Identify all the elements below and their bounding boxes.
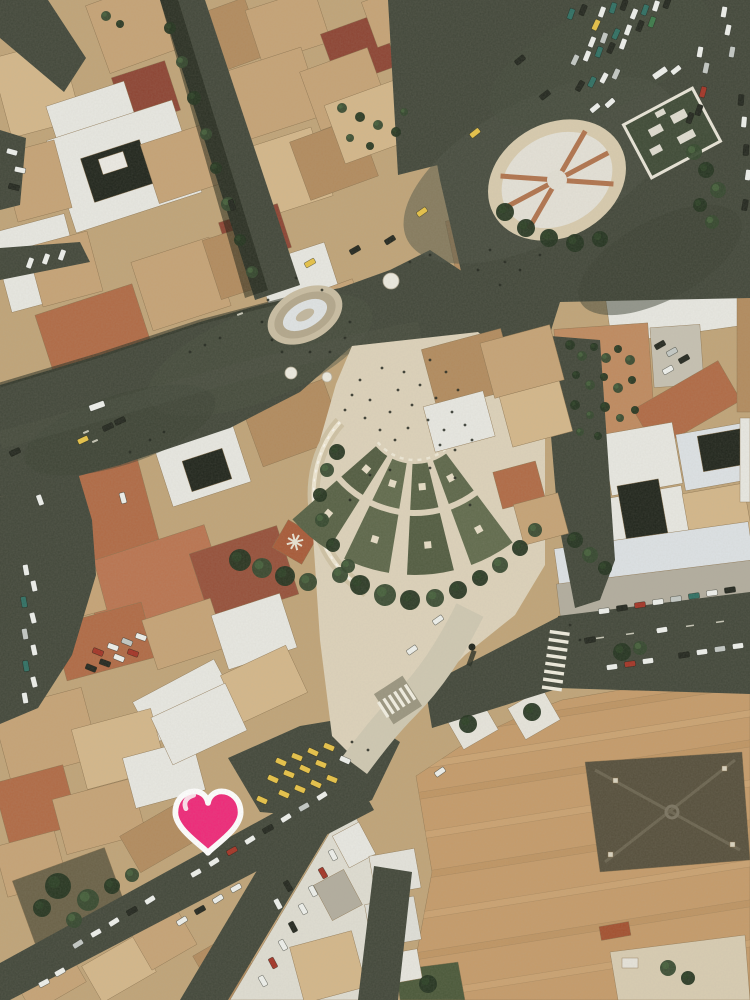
aerial-photo-canvas (0, 0, 750, 1000)
aerial-photo (0, 0, 750, 1000)
film-grain-overlay (0, 0, 750, 1000)
